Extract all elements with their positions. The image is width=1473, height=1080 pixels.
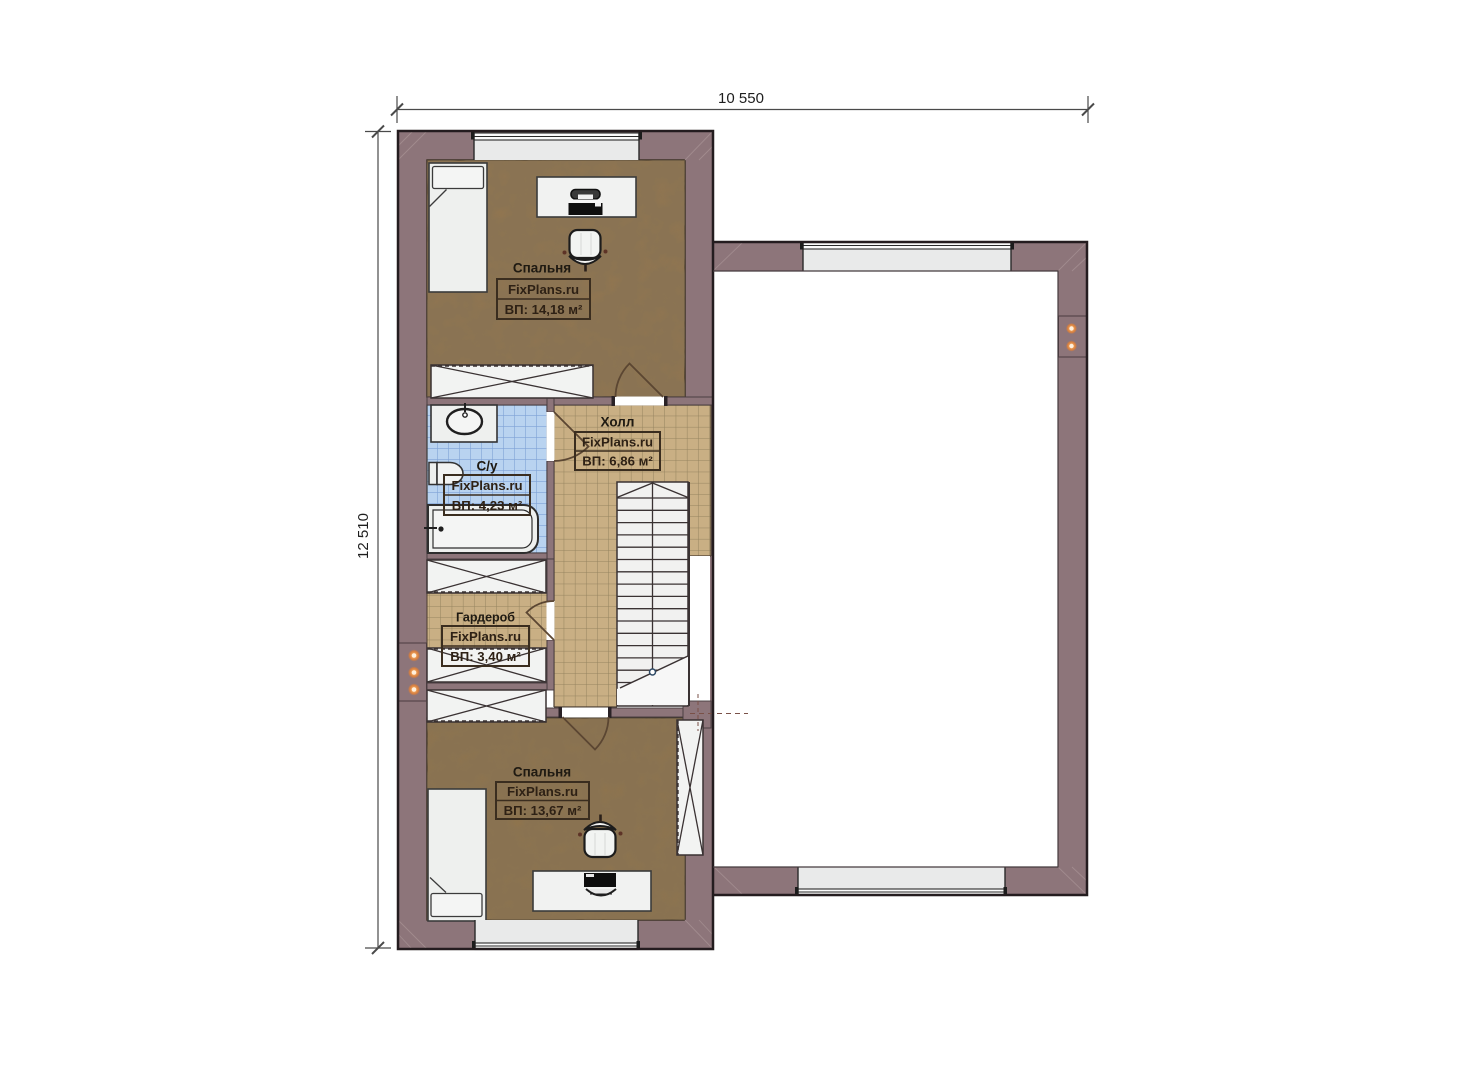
svg-text:Спальня: Спальня (513, 765, 571, 780)
svg-text:ВП: 14,18 м²: ВП: 14,18 м² (505, 302, 583, 317)
svg-text:FixPlans.ru: FixPlans.ru (450, 629, 521, 644)
svg-text:Холл: Холл (601, 415, 635, 430)
svg-text:FixPlans.ru: FixPlans.ru (507, 784, 578, 799)
svg-text:FixPlans.ru: FixPlans.ru (582, 435, 653, 450)
svg-text:ВП: 13,67 м²: ВП: 13,67 м² (504, 803, 582, 818)
svg-text:ВП: 6,86 м²: ВП: 6,86 м² (582, 454, 653, 469)
svg-text:С/у: С/у (476, 459, 498, 474)
svg-text:12 510: 12 510 (355, 513, 372, 559)
svg-text:Спальня: Спальня (513, 261, 571, 276)
svg-text:ВП: 4,23 м²: ВП: 4,23 м² (452, 498, 523, 513)
svg-text:10 550: 10 550 (718, 90, 764, 107)
svg-text:FixPlans.ru: FixPlans.ru (508, 282, 579, 297)
svg-text:Гардероб: Гардероб (456, 611, 515, 625)
svg-text:ВП: 3,40 м²: ВП: 3,40 м² (450, 649, 521, 664)
svg-text:FixPlans.ru: FixPlans.ru (451, 478, 522, 493)
